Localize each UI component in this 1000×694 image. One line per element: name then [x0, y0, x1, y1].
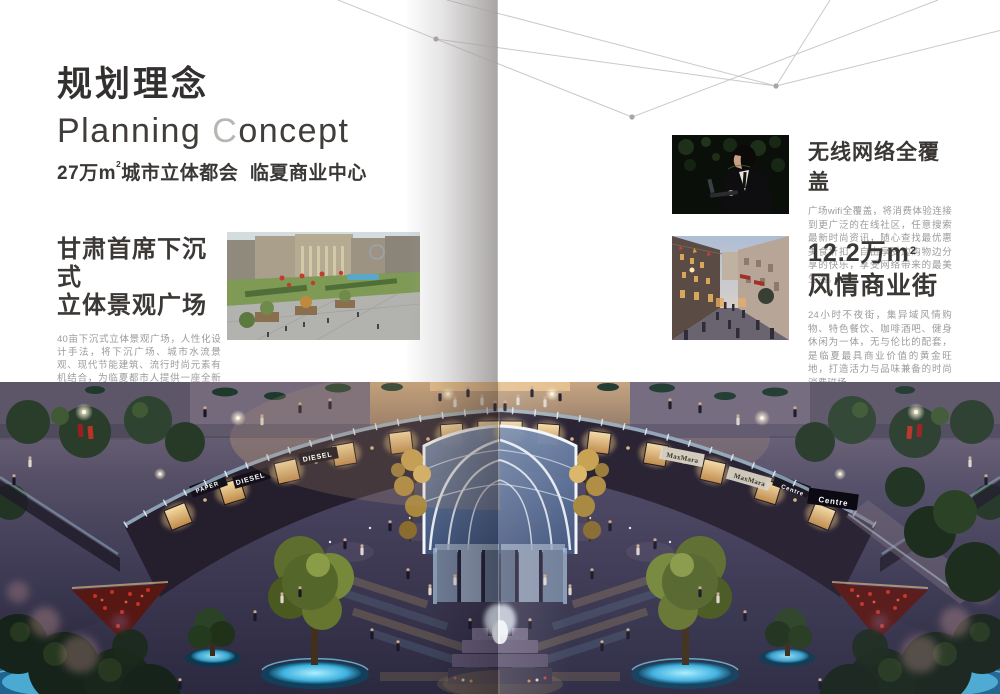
section-street: 12.2万m2 风情商业街 24小时不夜街，集异域风情购物、特色餐饮、咖啡酒吧、… — [808, 239, 952, 390]
street-body: 24小时不夜街，集异域风情购物、特色餐饮、咖啡酒吧、健身休闲为一体，无与伦比的配… — [808, 309, 952, 390]
right-extras — [498, 382, 1000, 694]
title-block: 规划理念 Planning Concept 27万m2城市立体都会 临夏商业中心 — [57, 56, 367, 185]
wifi-photo — [672, 135, 789, 214]
title-en-part2: oncept — [238, 112, 349, 150]
title-en-part1: Planning — [57, 112, 212, 150]
plaza-rendering-image — [227, 232, 420, 340]
street-photo — [672, 236, 789, 340]
title-en-accent-letter: C — [212, 112, 238, 150]
brochure-spread: 规划理念 Planning Concept 27万m2城市立体都会 临夏商业中心… — [0, 0, 1000, 694]
street-heading: 12.2万m2 风情商业街 — [808, 239, 952, 300]
wifi-heading: 无线网络全覆盖 — [808, 136, 952, 196]
page-subtitle: 27万m2城市立体都会 临夏商业中心 — [57, 158, 367, 185]
subtitle-superscript: 2 — [116, 159, 121, 169]
street-heading-superscript: 2 — [910, 245, 917, 257]
page-title-cn: 规划理念 — [57, 56, 367, 107]
node-dot — [773, 83, 778, 88]
page-title-en: Planning Concept — [57, 112, 367, 151]
photo-seam-highlight — [498, 382, 570, 694]
photo-seam-shadow — [430, 382, 498, 694]
section-heading: 甘肃首席下沉式 立体景观广场 — [57, 236, 221, 320]
section-sunken-plaza: 甘肃首席下沉式 立体景观广场 40亩下沉式立体景观广场，人性化设计手法，将下沉广… — [57, 236, 221, 398]
page-fold-shadow — [405, 0, 497, 382]
page-fold-line — [497, 0, 498, 382]
node-dot — [629, 114, 634, 119]
